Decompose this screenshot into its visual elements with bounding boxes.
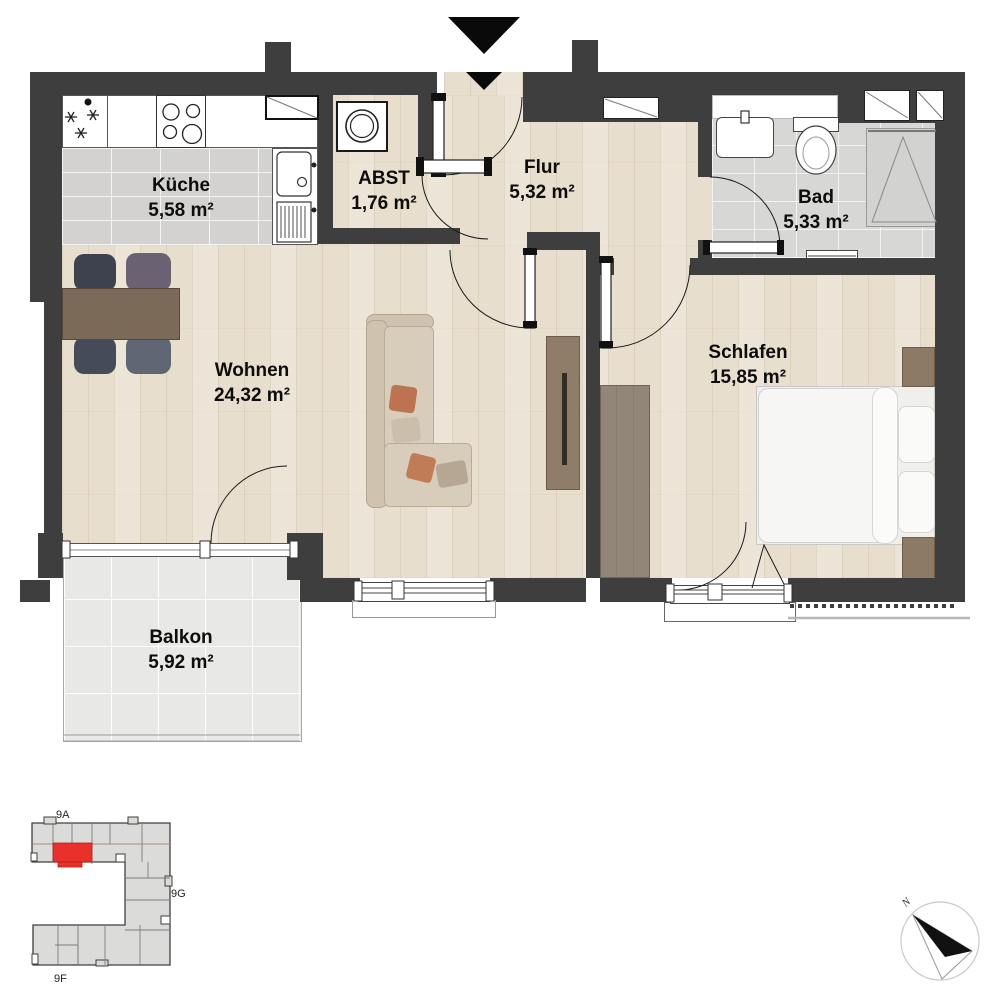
bath-sink [716, 117, 774, 158]
wall-right [935, 72, 965, 602]
room-label-schlafen: Schlafen 15,85 m² [668, 340, 828, 390]
room-name: Schlafen [668, 340, 828, 365]
wall-bad-left-stub [698, 240, 712, 258]
room-area: 5,32 m² [462, 180, 622, 205]
wohnen-south-window [358, 582, 490, 602]
wall-bad-bottom [690, 258, 965, 275]
room-area: 15,85 m² [668, 365, 828, 390]
wall-left-stub [38, 533, 63, 578]
fridge [62, 95, 108, 148]
wall-bottom-4 [788, 578, 965, 602]
dining-table [62, 288, 180, 340]
wall-outer-stub [20, 580, 50, 602]
sideboard [546, 336, 580, 490]
floor-plan-page: 9A 9G 9F N Küche 5,58 m² ABST 1,76 m² Fl… [0, 0, 1000, 1000]
building-label-9f: 9F [54, 973, 67, 985]
room-label-kueche: Küche 5,58 m² [101, 173, 261, 223]
room-area: 24,32 m² [172, 383, 332, 408]
building-label-9g: 9G [171, 888, 186, 900]
room-name: Bad [736, 185, 896, 210]
highlighted-unit [53, 843, 92, 867]
bed-pillow [898, 471, 935, 533]
room-name: Wohnen [172, 358, 332, 383]
bed-duvet-fold [872, 387, 898, 544]
wall-abst-bottom [318, 228, 460, 244]
washing-machine [336, 101, 388, 152]
room-label-bad: Bad 5,33 m² [736, 185, 896, 235]
building-overview-map: 9A 9G 9F [31, 809, 186, 985]
sideboard-handle [562, 373, 567, 465]
dining-chair [74, 337, 116, 374]
room-label-wohnen: Wohnen 24,32 m² [172, 358, 332, 408]
sofa-pillow [435, 460, 469, 489]
wall-bottom-3 [600, 578, 672, 602]
dining-chair [74, 254, 116, 291]
wall-bottom-1 [300, 578, 360, 602]
room-name: Balkon [101, 625, 261, 650]
wall-bottom-2 [490, 578, 586, 602]
wall-wohnen-schlafen [586, 232, 600, 578]
room-label-flur: Flur 5,32 m² [462, 155, 622, 205]
room-area: 1,76 m² [304, 191, 464, 216]
schlafen-window-sill [664, 602, 796, 622]
sofa-pillow [391, 417, 421, 444]
wall-bump [265, 42, 291, 73]
bath-window [916, 90, 944, 121]
balcony-glass-front [66, 543, 294, 557]
stove [156, 95, 206, 148]
flur-window-niche [603, 97, 659, 119]
toilet-tank [793, 117, 839, 132]
wohnen-window-sill [352, 600, 496, 618]
wall-bump [572, 40, 598, 73]
bath-counter [712, 95, 838, 119]
building-label-9a: 9A [56, 809, 70, 821]
wall-abst-right [418, 95, 433, 160]
bath-window [864, 90, 910, 121]
wardrobe [600, 385, 650, 578]
schlafen-south-window [670, 585, 790, 604]
wall-left-upper [30, 72, 62, 302]
dining-chair [126, 336, 171, 374]
wall-schlafen-stub [600, 258, 614, 275]
wall-left-lower [44, 302, 62, 533]
wall-bad-left-top [698, 95, 712, 177]
room-label-abst: ABST 1,76 m² [304, 166, 464, 216]
nightstand [902, 347, 935, 387]
nightstand [902, 537, 935, 581]
room-area: 5,92 m² [101, 650, 261, 675]
building-outline [32, 823, 170, 965]
dining-chair [126, 253, 171, 291]
entrance-arrow-icon [448, 17, 520, 54]
wall-top-left [30, 72, 437, 95]
room-area: 5,33 m² [736, 210, 896, 235]
kitchen-window-niche [265, 95, 319, 120]
bed-pillow [898, 406, 935, 463]
room-name: Flur [462, 155, 622, 180]
entrance-threshold [444, 72, 523, 96]
compass-north-label: N [899, 895, 914, 910]
room-area: 5,58 m² [101, 198, 261, 223]
room-name: Küche [101, 173, 261, 198]
sofa-pillow [388, 384, 417, 413]
room-label-balkon: Balkon 5,92 m² [101, 625, 261, 675]
north-arrow-icon: N [899, 895, 979, 980]
room-name: ABST [304, 166, 464, 191]
